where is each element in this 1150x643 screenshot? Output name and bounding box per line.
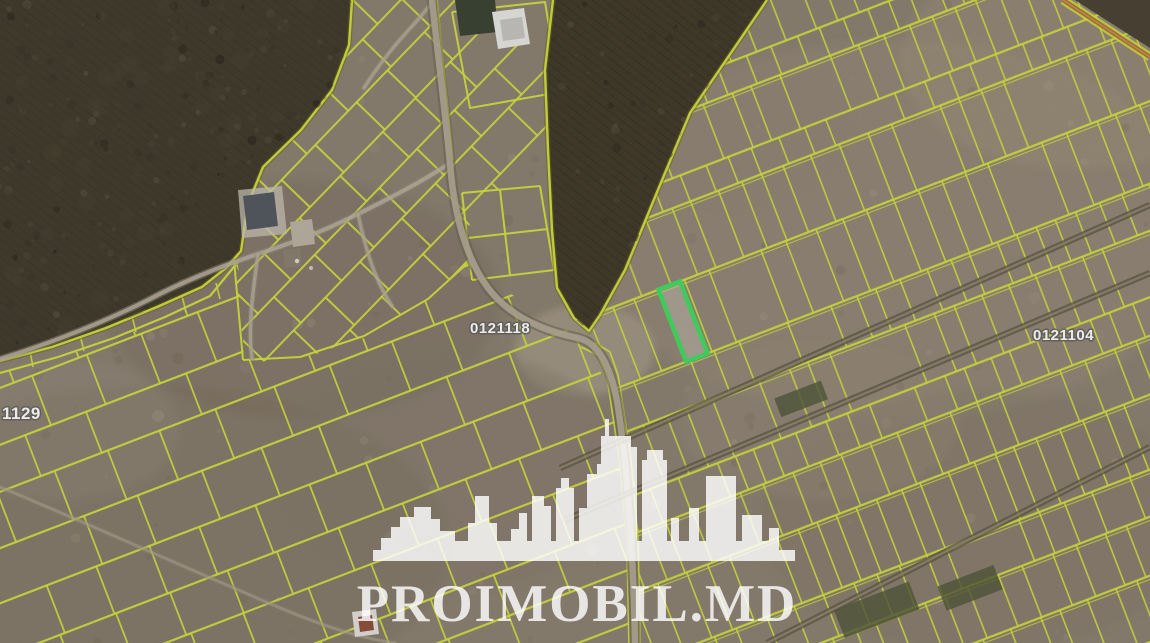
cadastral-label-center: 0121118	[470, 320, 530, 337]
satellite-map-viewport[interactable]: 1129 0121118 0121104 PROIMOBIL.MD	[0, 0, 1150, 643]
watermark-text: PROIMOBIL.MD	[357, 575, 798, 633]
cadastral-label-left: 1129	[2, 404, 41, 423]
cadastral-map-canvas[interactable]: 1129 0121118 0121104 PROIMOBIL.MD	[0, 0, 1150, 643]
cadastral-label-right: 0121104	[1033, 327, 1094, 344]
